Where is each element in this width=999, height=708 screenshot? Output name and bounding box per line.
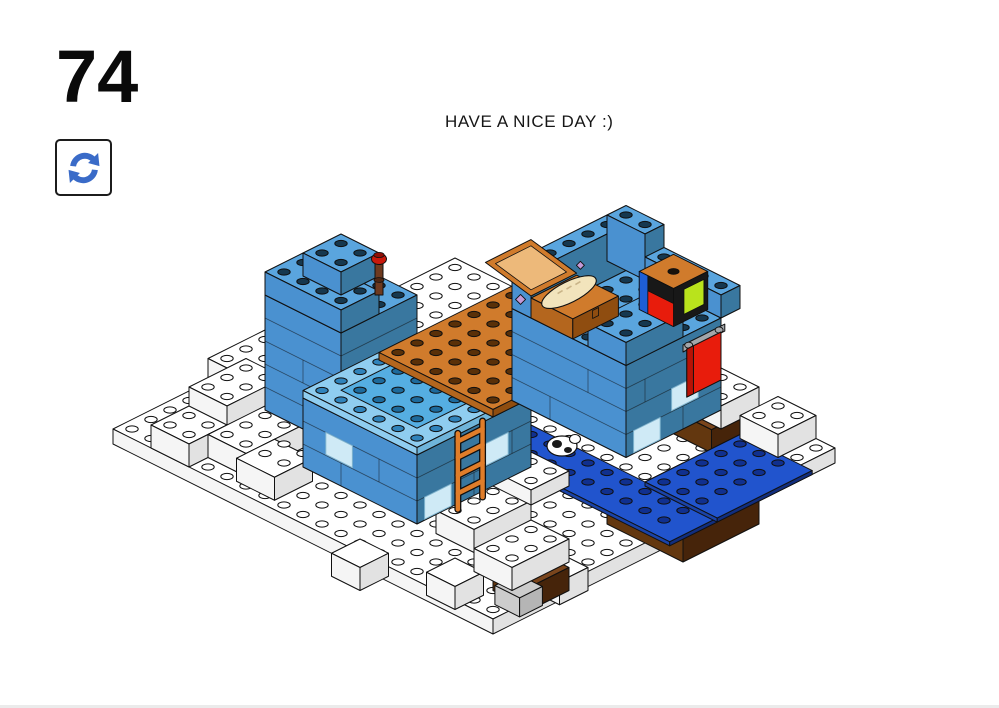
step-number: 74 — [56, 40, 138, 114]
lego-model-illustration — [110, 150, 870, 708]
instruction-page: 74 HAVE A NICE DAY :) — [0, 0, 999, 708]
rotate-arrows-glyph — [64, 148, 104, 188]
message-text: HAVE A NICE DAY :) — [445, 112, 614, 132]
rotate-model-icon — [55, 139, 112, 196]
